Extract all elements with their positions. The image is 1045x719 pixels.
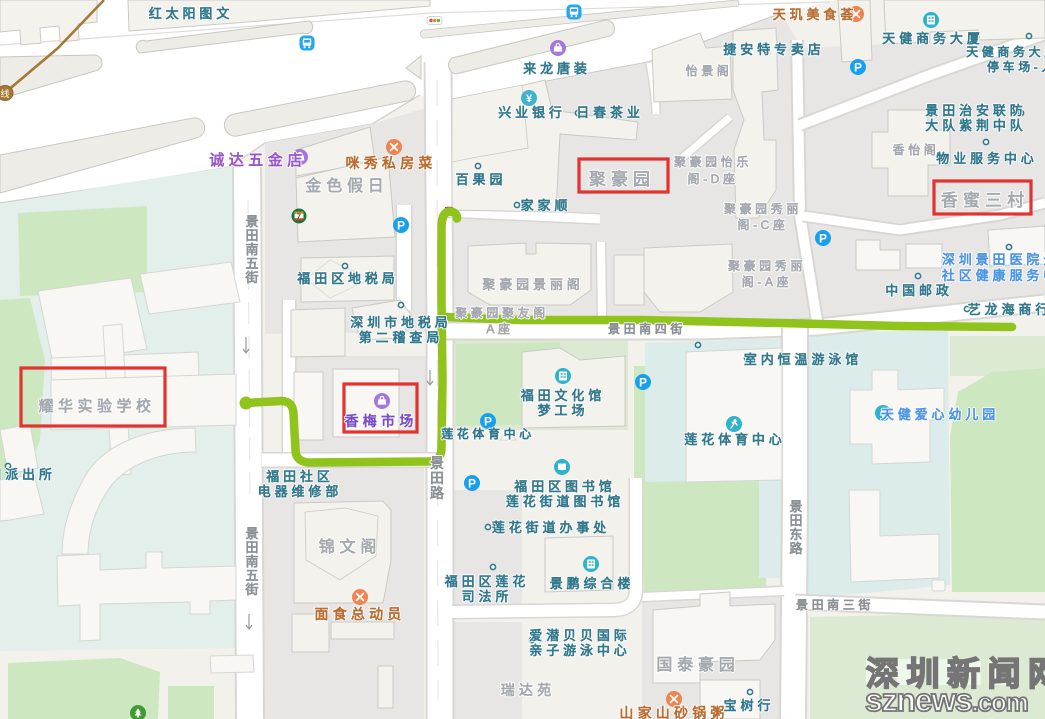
- svg-text:红太阳图文: 红太阳图文: [149, 6, 234, 21]
- svg-text:莲花体育中心: 莲花体育中心: [684, 432, 785, 447]
- svg-text:聚豪园秀丽: 聚豪园秀丽: [724, 201, 802, 216]
- svg-text:瑞达苑: 瑞达苑: [501, 682, 556, 698]
- svg-text:山家山砂锅粥: 山家山砂锅粥: [619, 705, 728, 719]
- svg-text:香蜜三村: 香蜜三村: [941, 191, 1029, 210]
- svg-text:国泰豪园: 国泰豪园: [656, 655, 739, 674]
- svg-text:梦工场: 梦工场: [538, 403, 589, 418]
- svg-text:爱潜贝贝国际: 爱潜贝贝国际: [529, 628, 630, 643]
- svg-text:景鹏综合楼: 景鹏综合楼: [550, 576, 635, 591]
- svg-text:景田东路: 景田东路: [789, 499, 802, 556]
- svg-text:司法所: 司法所: [462, 589, 513, 604]
- svg-text:景田南五街: 景田南五街: [245, 214, 258, 285]
- svg-text:锦文阁: 锦文阁: [319, 538, 381, 556]
- svg-text:天玑美食荟: 天玑美食荟: [773, 7, 858, 22]
- svg-text:聚豪园秀丽: 聚豪园秀丽: [728, 258, 806, 273]
- svg-text:景田南三街: 景田南三街: [796, 597, 874, 612]
- svg-text:A座: A座: [486, 321, 513, 336]
- svg-text:耀华实验学校: 耀华实验学校: [38, 398, 155, 415]
- svg-text:聚豪园怡乐: 聚豪园怡乐: [674, 154, 752, 169]
- svg-text:日春茶业: 日春茶业: [576, 105, 644, 120]
- svg-text:怡景阁: 怡景阁: [686, 64, 733, 78]
- svg-text:大队紫荆中队: 大队紫荆中队: [925, 118, 1026, 133]
- svg-text:田派出所: 田派出所: [0, 467, 56, 482]
- svg-text:莲花街道办事处: 莲花街道办事处: [492, 520, 610, 535]
- svg-text:艺龙海商行: 艺龙海商行: [968, 302, 1045, 317]
- svg-text:福田区图书馆: 福田区图书馆: [514, 479, 615, 494]
- svg-text:停车场-入: 停车场-入: [987, 59, 1045, 74]
- svg-text:家家顺: 家家顺: [521, 198, 572, 213]
- svg-text:聚豪园景丽阁: 聚豪园景丽阁: [482, 277, 583, 292]
- svg-text:福田区地税局: 福田区地税局: [297, 271, 398, 286]
- svg-text:聚豪园聚友阁: 聚豪园聚友阁: [455, 305, 549, 320]
- svg-text:福田区莲花: 福田区莲花: [445, 574, 530, 589]
- svg-text:天健爱心幼儿园: 天健爱心幼儿园: [881, 407, 999, 422]
- svg-text:深圳景田医院景: 深圳景田医院景: [942, 252, 1045, 267]
- svg-text:景田南五街: 景田南五街: [245, 526, 258, 597]
- svg-text:电器维修部: 电器维修部: [258, 484, 343, 499]
- svg-text:福田文化馆: 福田文化馆: [521, 388, 606, 403]
- svg-text:来龙唐装: 来龙唐装: [523, 61, 591, 76]
- svg-text:7: 7: [297, 212, 301, 221]
- svg-text:莲花街道图书馆: 莲花街道图书馆: [506, 494, 624, 509]
- svg-text:莲花体育中心: 莲花体育中心: [441, 426, 535, 441]
- svg-text:室内恒温游泳馆: 室内恒温游泳馆: [744, 352, 862, 367]
- svg-text:面食总动员: 面食总动员: [315, 606, 406, 622]
- svg-text:天健商务大厦: 天健商务大厦: [882, 31, 983, 46]
- svg-text:景田治安联防: 景田治安联防: [925, 103, 1026, 118]
- svg-text:阁-D座: 阁-D座: [687, 171, 738, 186]
- svg-text:阁-C座: 阁-C座: [737, 217, 788, 232]
- svg-text:香怡阁: 香怡阁: [893, 143, 940, 157]
- svg-text:咪秀私房菜: 咪秀私房菜: [346, 155, 437, 171]
- svg-text:P: P: [819, 231, 827, 245]
- svg-text:景田路: 景田路: [430, 455, 444, 501]
- svg-text:P: P: [468, 476, 476, 490]
- svg-text:P: P: [397, 218, 405, 232]
- svg-text:¥: ¥: [526, 93, 533, 105]
- svg-text:香梅市场: 香梅市场: [345, 413, 418, 429]
- svg-text:福田社区: 福田社区: [266, 469, 334, 484]
- svg-text:兴业银行: 兴业银行: [498, 105, 566, 120]
- svg-text:百果园: 百果园: [456, 172, 507, 187]
- svg-text:宝树行: 宝树行: [724, 698, 775, 713]
- svg-text:诚达五金店: 诚达五金店: [209, 152, 307, 169]
- svg-text:线: 线: [0, 88, 9, 99]
- svg-text:阁-A座: 阁-A座: [742, 274, 792, 289]
- svg-text:亲子游泳中心: 亲子游泳中心: [529, 643, 630, 658]
- svg-text:中国邮政: 中国邮政: [885, 283, 953, 298]
- svg-text:深圳市地税局: 深圳市地税局: [350, 315, 451, 330]
- svg-text:第二稽查局: 第二稽查局: [359, 330, 444, 345]
- svg-text:物业服务中心: 物业服务中心: [936, 151, 1037, 166]
- svg-text:P: P: [854, 60, 862, 74]
- svg-text:天健商务大厦: 天健商务大厦: [966, 44, 1045, 59]
- svg-text:捷安特专卖店: 捷安特专卖店: [723, 42, 824, 57]
- svg-text:聚豪园: 聚豪园: [589, 169, 655, 189]
- svg-text:P: P: [639, 375, 647, 389]
- svg-text:金色假日: 金色假日: [305, 177, 388, 195]
- svg-text:景田南四街: 景田南四街: [608, 321, 686, 336]
- svg-text:sznews.com: sznews.com: [865, 682, 1028, 718]
- svg-text:社区健康服务中: 社区健康服务中: [942, 268, 1045, 283]
